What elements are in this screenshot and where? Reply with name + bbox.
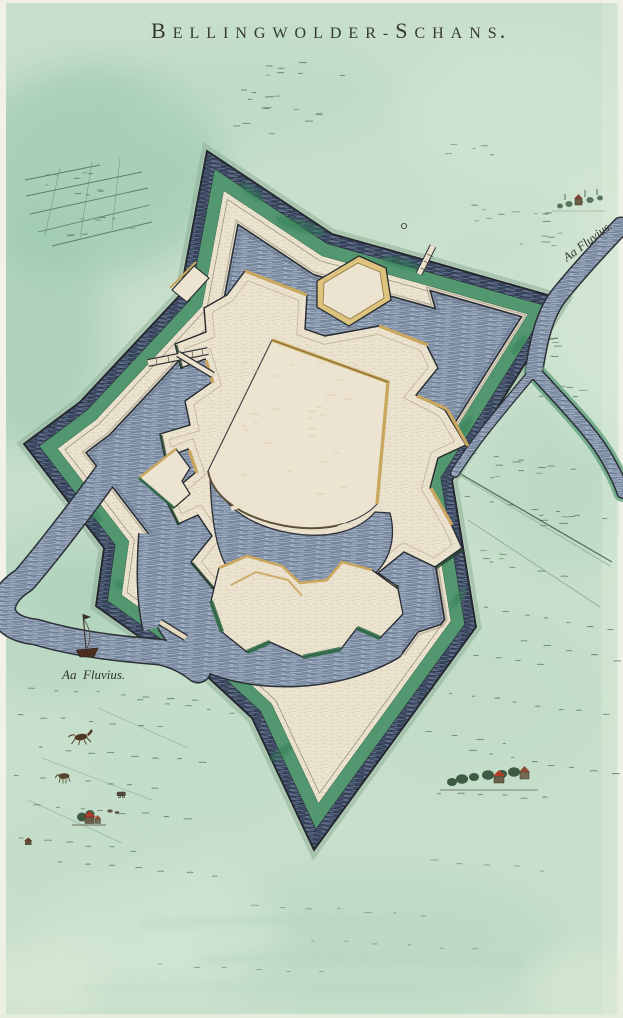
svg-text:Aa Fluvius.: Aa Fluvius. bbox=[61, 667, 125, 682]
